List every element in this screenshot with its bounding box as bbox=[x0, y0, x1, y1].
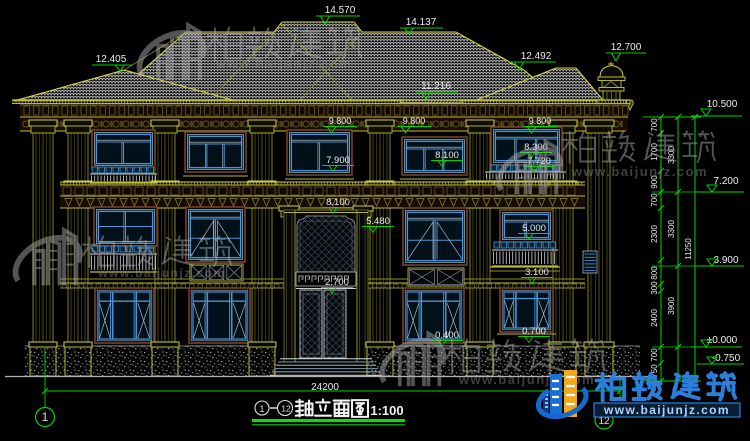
svg-text:1:100: 1:100 bbox=[370, 403, 403, 418]
svg-text:1: 1 bbox=[42, 410, 49, 424]
svg-text:±0.000: ±0.000 bbox=[707, 335, 738, 346]
svg-text:12.492: 12.492 bbox=[521, 51, 552, 62]
svg-text:0.700: 0.700 bbox=[522, 326, 546, 337]
svg-text:2400: 2400 bbox=[650, 309, 659, 327]
svg-text:1: 1 bbox=[259, 404, 264, 414]
svg-text:700: 700 bbox=[650, 348, 659, 362]
svg-text:www.baijunjz.com: www.baijunjz.com bbox=[215, 56, 352, 71]
svg-text:9.800: 9.800 bbox=[403, 116, 426, 126]
svg-text:10.500: 10.500 bbox=[707, 99, 738, 110]
svg-text:24200: 24200 bbox=[311, 382, 339, 393]
svg-text:12: 12 bbox=[281, 404, 291, 414]
svg-text:2300: 2300 bbox=[650, 225, 659, 243]
svg-text:9.800: 9.800 bbox=[329, 116, 352, 126]
svg-text:14.570: 14.570 bbox=[325, 5, 356, 16]
svg-text:8.100: 8.100 bbox=[435, 150, 459, 161]
svg-text:7.900: 7.900 bbox=[326, 155, 350, 166]
svg-text:700: 700 bbox=[650, 118, 659, 132]
svg-text:8.100: 8.100 bbox=[326, 197, 350, 208]
svg-text:12: 12 bbox=[598, 416, 610, 427]
svg-text:5.000: 5.000 bbox=[522, 223, 546, 234]
svg-text:11.216: 11.216 bbox=[421, 81, 451, 92]
svg-text:800: 800 bbox=[650, 266, 659, 280]
svg-text:3.100: 3.100 bbox=[525, 267, 549, 278]
svg-text:9.800: 9.800 bbox=[529, 116, 552, 126]
svg-text:2.700: 2.700 bbox=[325, 277, 349, 288]
svg-text:3300: 3300 bbox=[667, 220, 676, 238]
svg-text:300: 300 bbox=[650, 281, 659, 295]
svg-text:5.480: 5.480 bbox=[366, 216, 390, 227]
svg-text:700: 700 bbox=[650, 193, 659, 207]
svg-text:www.baijunjz.com: www.baijunjz.com bbox=[603, 403, 730, 417]
svg-text:3.900: 3.900 bbox=[713, 255, 738, 266]
svg-text:3900: 3900 bbox=[667, 297, 676, 315]
svg-text:12.700: 12.700 bbox=[611, 42, 642, 53]
svg-text:www.baijunjz.com: www.baijunjz.com bbox=[571, 164, 708, 179]
svg-text:11250: 11250 bbox=[684, 238, 693, 260]
svg-text:14.137: 14.137 bbox=[406, 17, 437, 28]
svg-text:12.405: 12.405 bbox=[96, 54, 127, 65]
svg-text:www.baijunjz.com: www.baijunjz.com bbox=[97, 266, 226, 280]
